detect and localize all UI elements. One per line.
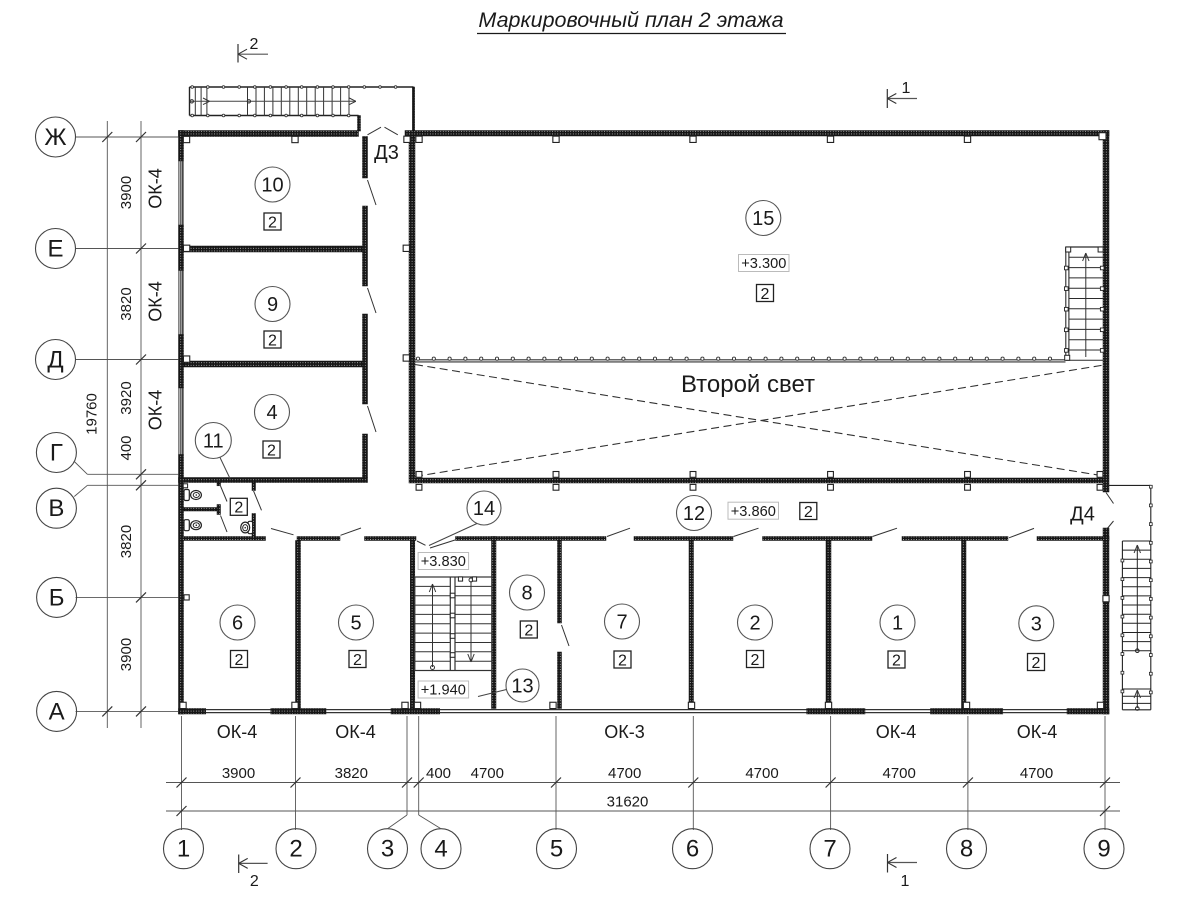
svg-text:3920: 3920 xyxy=(118,381,135,414)
svg-text:А: А xyxy=(49,698,65,725)
svg-text:9: 9 xyxy=(267,294,278,316)
svg-text:3820: 3820 xyxy=(335,765,368,782)
svg-text:+3.300: +3.300 xyxy=(741,256,786,272)
svg-text:3820: 3820 xyxy=(118,287,135,320)
svg-text:400: 400 xyxy=(118,435,135,460)
svg-text:2: 2 xyxy=(1032,655,1041,672)
svg-text:4700: 4700 xyxy=(745,765,778,782)
svg-text:3: 3 xyxy=(1031,614,1042,636)
svg-text:Маркировочный план 2 этажа: Маркировочный план 2 этажа xyxy=(478,8,783,32)
svg-text:Д4: Д4 xyxy=(1070,504,1095,526)
svg-text:7: 7 xyxy=(823,836,836,863)
svg-text:3900: 3900 xyxy=(118,638,135,671)
svg-text:ОК-4: ОК-4 xyxy=(876,722,917,742)
svg-text:5: 5 xyxy=(550,836,563,863)
svg-text:15: 15 xyxy=(752,208,774,230)
svg-text:Е: Е xyxy=(47,236,63,263)
svg-text:ОК-3: ОК-3 xyxy=(604,722,645,742)
svg-text:11: 11 xyxy=(203,431,224,453)
svg-text:3: 3 xyxy=(381,836,394,863)
svg-text:2: 2 xyxy=(268,214,277,231)
svg-text:Д: Д xyxy=(47,347,63,374)
svg-text:4700: 4700 xyxy=(608,765,641,782)
svg-text:2: 2 xyxy=(268,332,277,349)
svg-text:4: 4 xyxy=(434,836,447,863)
svg-text:31620: 31620 xyxy=(607,794,649,811)
svg-text:12: 12 xyxy=(683,503,705,525)
svg-text:2: 2 xyxy=(250,36,259,53)
svg-text:2: 2 xyxy=(289,836,302,863)
svg-text:3900: 3900 xyxy=(222,765,255,782)
svg-text:9: 9 xyxy=(1097,836,1110,863)
svg-text:8: 8 xyxy=(960,836,973,863)
svg-text:10: 10 xyxy=(261,175,283,197)
svg-text:1: 1 xyxy=(177,836,190,863)
svg-text:2: 2 xyxy=(892,652,901,669)
svg-text:+3.860: +3.860 xyxy=(731,504,776,520)
svg-text:2: 2 xyxy=(618,652,627,669)
svg-text:1: 1 xyxy=(892,613,903,635)
svg-text:2: 2 xyxy=(751,652,760,669)
svg-text:19760: 19760 xyxy=(84,393,101,435)
svg-text:4: 4 xyxy=(266,402,277,424)
svg-text:ОК-4: ОК-4 xyxy=(1017,722,1058,742)
svg-text:8: 8 xyxy=(521,583,532,605)
svg-text:14: 14 xyxy=(473,498,495,520)
svg-text:2: 2 xyxy=(235,652,244,669)
svg-text:3900: 3900 xyxy=(118,176,135,209)
svg-text:2: 2 xyxy=(234,500,243,517)
svg-text:+3.830: +3.830 xyxy=(421,554,466,570)
svg-text:1: 1 xyxy=(902,80,911,97)
svg-text:2: 2 xyxy=(761,286,770,303)
svg-text:2: 2 xyxy=(749,613,760,635)
svg-text:+1.940: +1.940 xyxy=(421,683,466,699)
svg-text:2: 2 xyxy=(524,622,533,639)
svg-text:ОК-4: ОК-4 xyxy=(335,722,376,742)
svg-text:4700: 4700 xyxy=(471,765,504,782)
svg-text:Г: Г xyxy=(50,440,63,467)
svg-text:400: 400 xyxy=(426,765,451,782)
svg-text:6: 6 xyxy=(686,836,699,863)
svg-text:2: 2 xyxy=(250,873,259,890)
svg-text:3820: 3820 xyxy=(118,525,135,558)
svg-text:7: 7 xyxy=(616,612,627,634)
svg-text:2: 2 xyxy=(804,504,813,521)
svg-text:В: В xyxy=(48,495,64,522)
svg-text:5: 5 xyxy=(350,613,361,635)
svg-text:Ж: Ж xyxy=(44,124,66,151)
svg-text:4700: 4700 xyxy=(883,765,916,782)
svg-text:2: 2 xyxy=(353,652,362,669)
svg-text:ОК-4: ОК-4 xyxy=(146,390,166,431)
svg-text:Второй свет: Второй свет xyxy=(681,371,815,398)
svg-text:13: 13 xyxy=(511,676,533,698)
svg-text:ОК-4: ОК-4 xyxy=(217,722,258,742)
svg-text:6: 6 xyxy=(232,613,243,635)
svg-text:4700: 4700 xyxy=(1020,765,1053,782)
svg-text:ОК-4: ОК-4 xyxy=(146,168,166,209)
svg-text:2: 2 xyxy=(267,442,276,459)
svg-text:1: 1 xyxy=(901,873,910,890)
svg-text:Д3: Д3 xyxy=(374,142,399,164)
svg-text:ОК-4: ОК-4 xyxy=(146,281,166,322)
svg-text:Б: Б xyxy=(49,584,65,611)
